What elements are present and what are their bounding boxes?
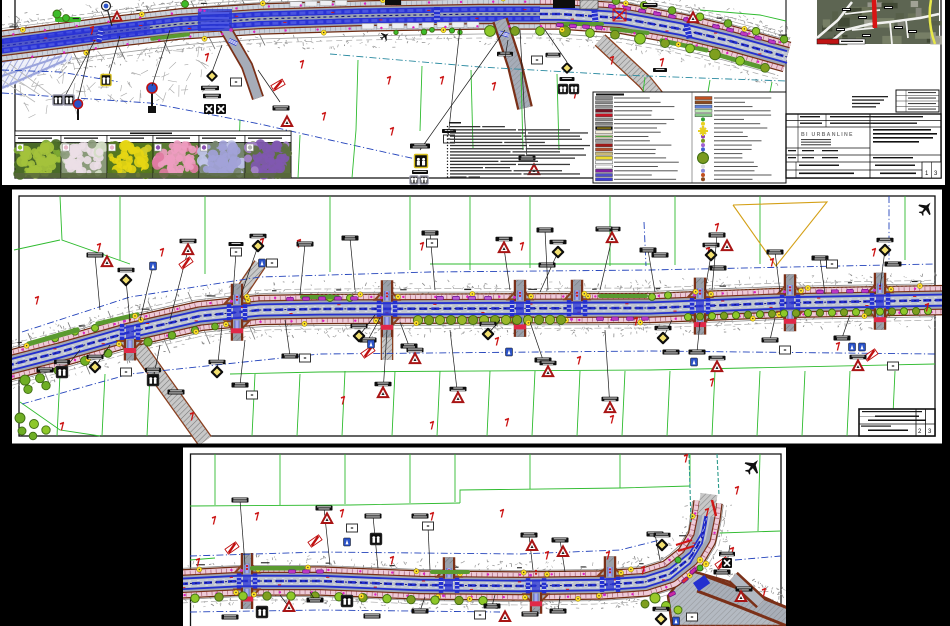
svg-text:BI URBANLINE: BI URBANLINE <box>801 132 854 138</box>
